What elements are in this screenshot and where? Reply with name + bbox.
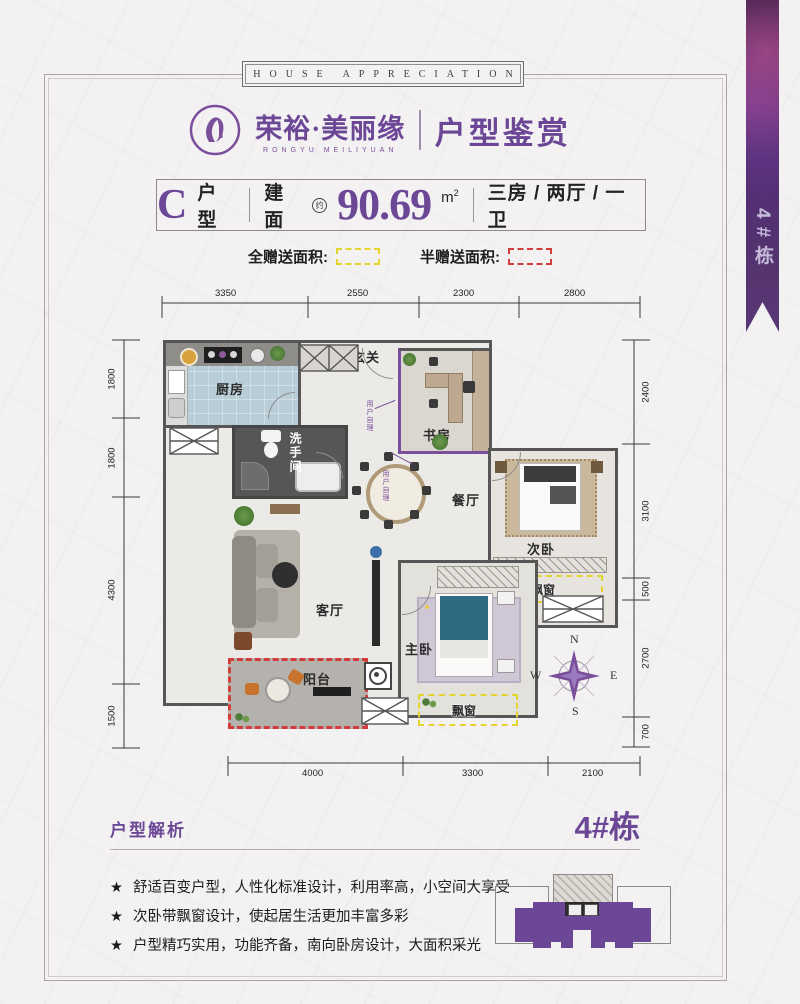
dim-left-4: 1500: [107, 705, 118, 726]
dim-right-3: 500: [641, 581, 652, 597]
keyplan-notch: [605, 942, 615, 949]
dim-right-4: 2700: [641, 647, 652, 668]
dim-bottom-2: 3300: [462, 768, 483, 779]
dim-bottom-3: 2100: [582, 768, 603, 779]
dim-top-1: 3350: [215, 288, 236, 299]
dim-top-4: 2800: [564, 288, 585, 299]
keyplan-notch: [573, 930, 591, 948]
star-icon: ★: [110, 909, 123, 925]
analysis-divider: [110, 849, 640, 850]
dim-right-2: 3100: [641, 500, 652, 521]
analysis-bullet-2: ★ 次卧带飘窗设计，使起居生活更加丰富多彩: [110, 905, 409, 926]
analysis-bullet-3: ★ 户型精巧实用，功能齐备，南向卧房设计，大面积采光: [110, 934, 481, 955]
dim-left-2: 1800: [107, 447, 118, 468]
dim-top-2: 2550: [347, 288, 368, 299]
analysis-building: 4#栋: [500, 802, 640, 847]
keyplan-notch: [551, 942, 561, 949]
dim-left-1: 1800: [107, 368, 118, 389]
keyplan-unit-arm: [633, 908, 651, 942]
building-keyplan: [495, 868, 670, 963]
keyplan-elevator: [565, 902, 599, 916]
dim-right-5: 700: [641, 724, 652, 740]
dim-top-3: 2300: [453, 288, 474, 299]
analysis-title: 户型解析: [110, 816, 186, 841]
floorplan: 厨房 玄关 书房 洗手间 餐厅: [0, 0, 800, 1004]
keyplan-unit-arm: [515, 908, 533, 942]
dim-bottom-1: 4000: [302, 768, 323, 779]
bullet-text: 舒适百变户型，人性化标准设计，利用率高，小空间大享受: [133, 880, 510, 896]
bullet-text: 户型精巧实用，功能齐备，南向卧房设计，大面积采光: [133, 938, 481, 954]
dim-left-3: 4300: [107, 579, 118, 600]
star-icon: ★: [110, 880, 123, 896]
star-icon: ★: [110, 938, 123, 954]
analysis-bullet-1: ★ 舒适百变户型，人性化标准设计，利用率高，小空间大享受: [110, 876, 510, 897]
dimension-lines: [0, 0, 800, 1004]
bullet-text: 次卧带飘窗设计，使起居生活更加丰富多彩: [133, 909, 409, 925]
dim-right-1: 2400: [641, 381, 652, 402]
